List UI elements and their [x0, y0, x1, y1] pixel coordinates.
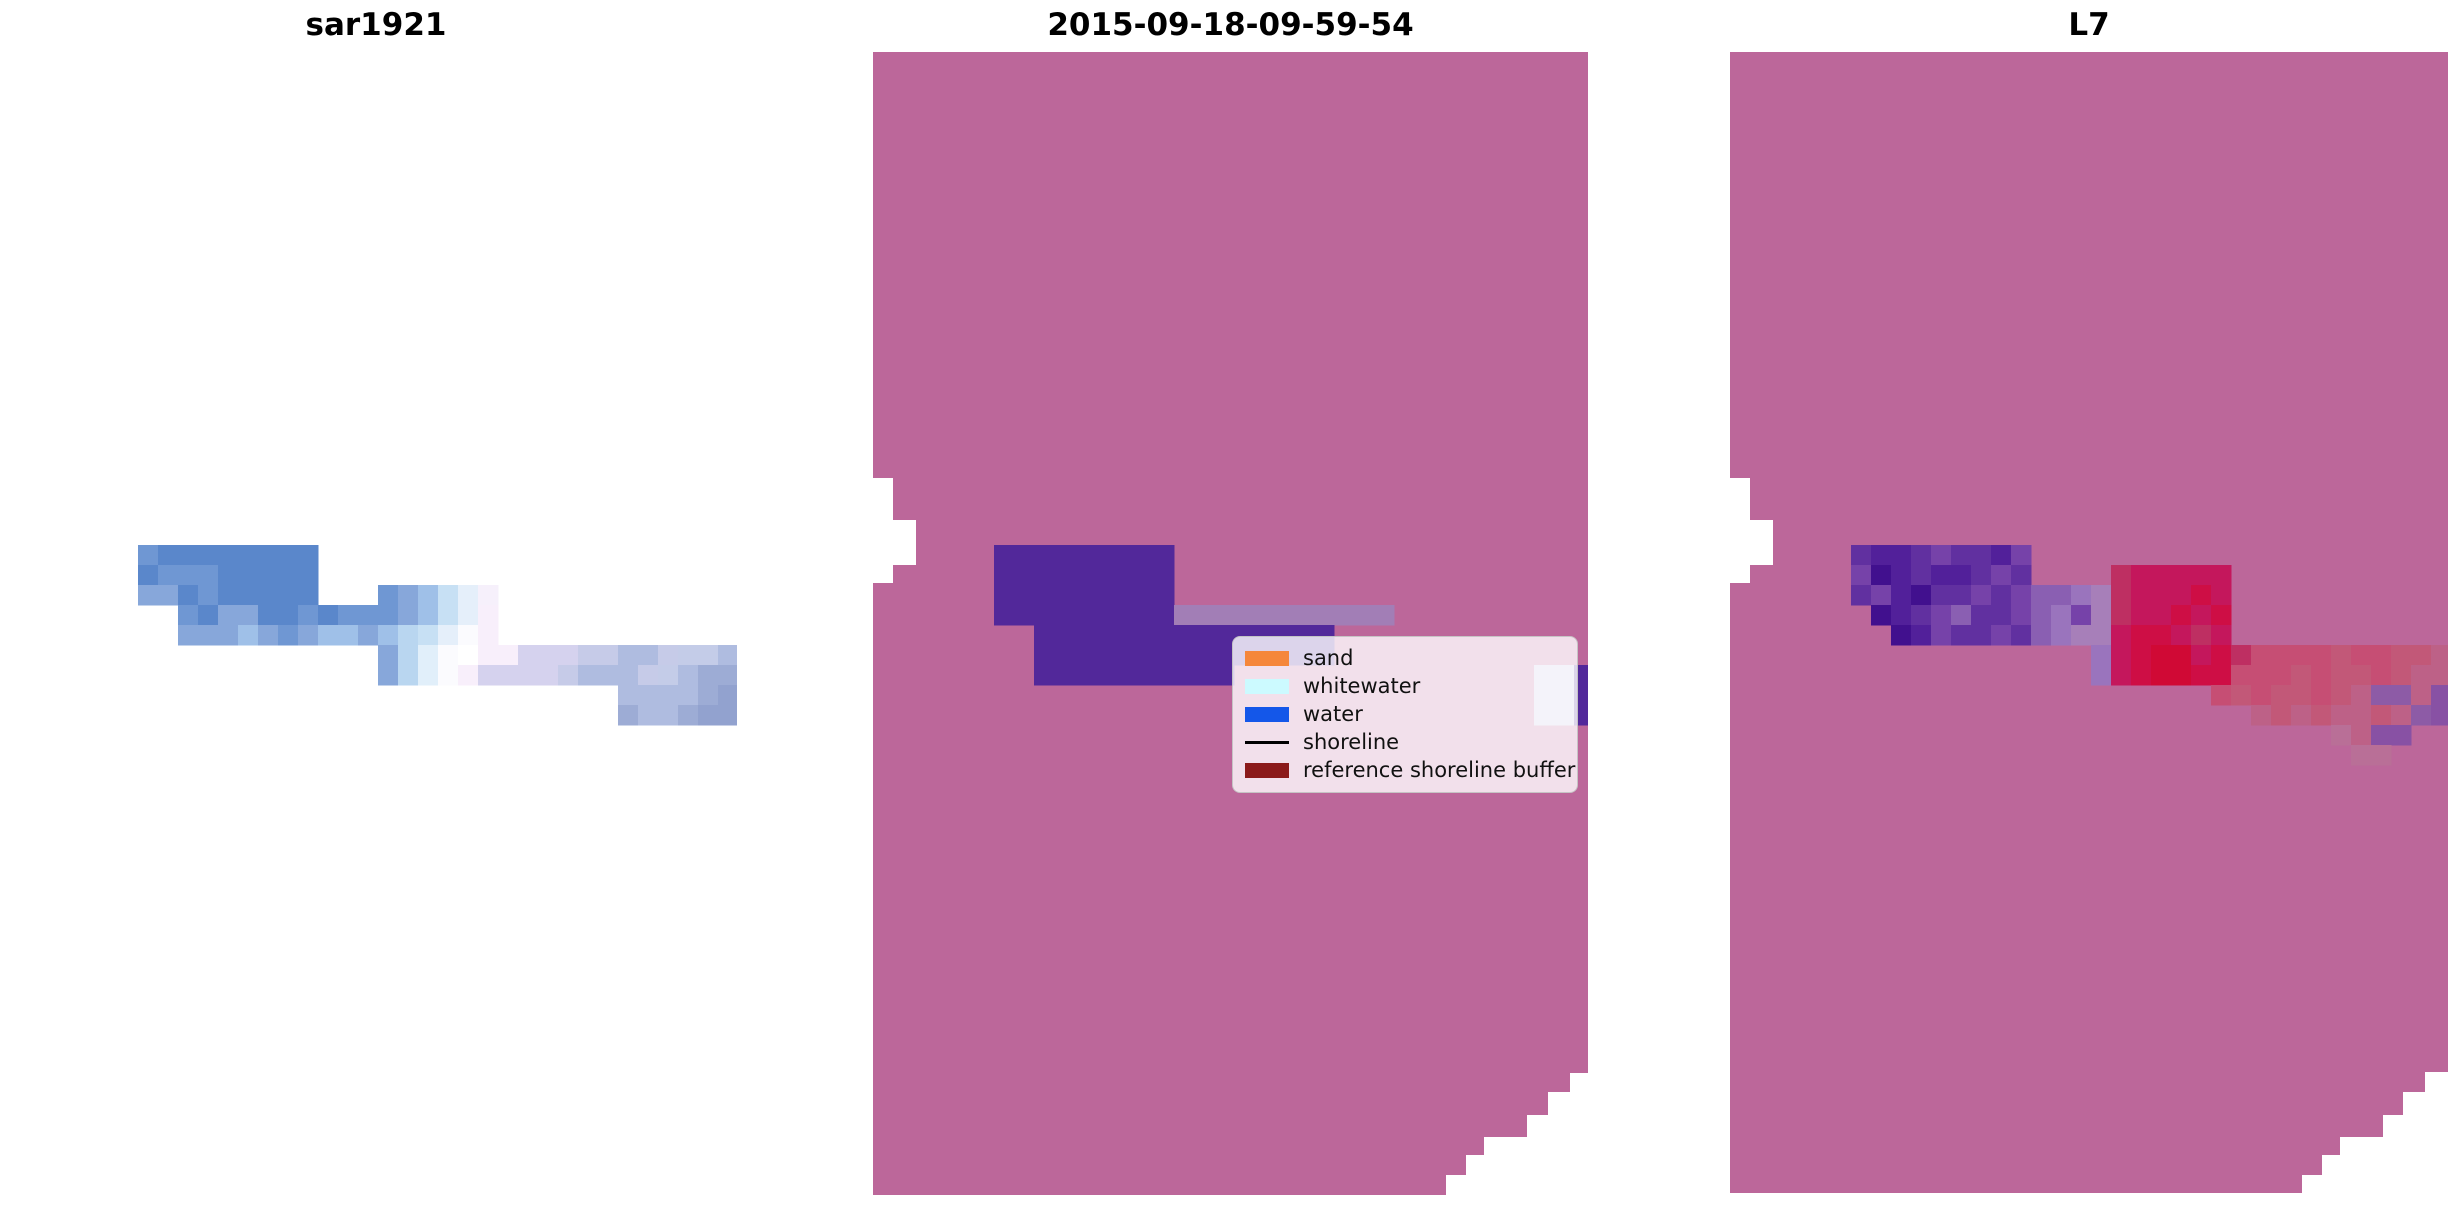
legend-entry-water: water — [1245, 704, 1565, 725]
shoreline-line-icon — [1245, 741, 1289, 744]
legend-label: reference shoreline buffer — [1303, 760, 1575, 781]
panel-l7 — [1730, 52, 2452, 1193]
water-swatch-icon — [1245, 707, 1289, 722]
sand-swatch-icon — [1245, 651, 1289, 666]
plot-svg — [0, 0, 2460, 1212]
whitewater-swatch-icon — [1245, 679, 1289, 694]
legend-label: shoreline — [1303, 732, 1399, 753]
legend-entry-sand: sand — [1245, 648, 1565, 669]
legend: sand whitewater water shoreline referenc… — [1232, 636, 1578, 793]
reference-shoreline-buffer-swatch-icon — [1245, 763, 1289, 778]
legend-entry-reference-shoreline-buffer: reference shoreline buffer — [1245, 760, 1565, 781]
panel-classified — [873, 52, 1595, 1195]
legend-label: water — [1303, 704, 1363, 725]
figure-canvas: sar1921 2015-09-18-09-59-54 L7 sand whit… — [0, 0, 2460, 1212]
legend-entry-shoreline: shoreline — [1245, 732, 1565, 753]
legend-label: sand — [1303, 648, 1353, 669]
panel-sar1921 — [138, 545, 739, 726]
legend-label: whitewater — [1303, 676, 1420, 697]
legend-entry-whitewater: whitewater — [1245, 676, 1565, 697]
